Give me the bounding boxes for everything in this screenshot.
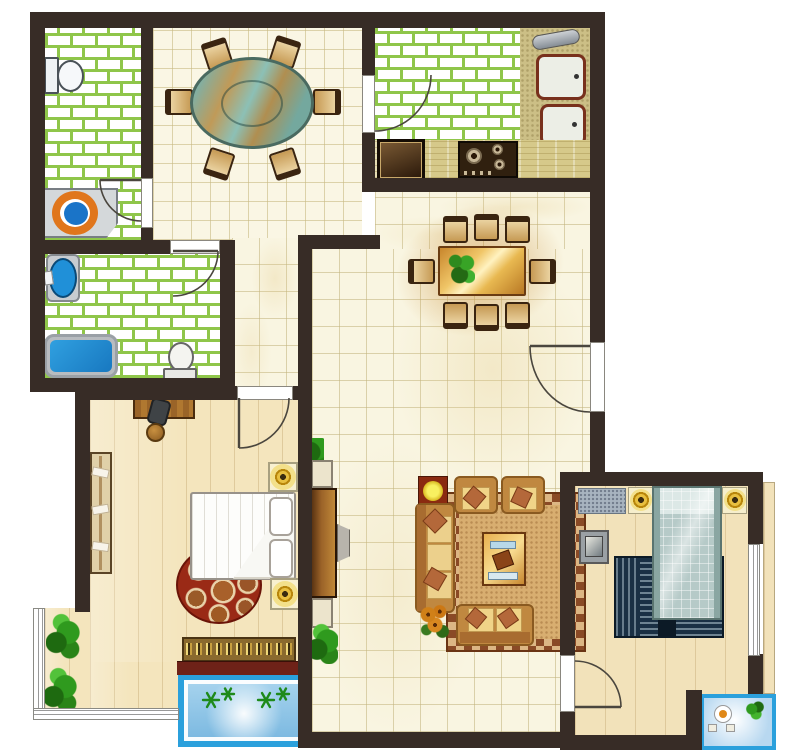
wall-left-upper (30, 12, 45, 392)
dresser[interactable] (578, 488, 626, 514)
dining-chair[interactable] (313, 89, 341, 115)
table-plant-icon (447, 251, 475, 285)
wall-bed2-south (560, 735, 702, 750)
door-leaf-kitchen[interactable] (362, 75, 375, 133)
window-balcony-south (33, 708, 179, 720)
wall-right-upper (590, 12, 605, 342)
stove-knobs (464, 171, 492, 175)
sink-drain-icon (574, 74, 579, 79)
wall-kitchen-west-upper (362, 28, 375, 75)
wall-bed2-step (686, 690, 702, 740)
sunflower-pot (418, 604, 452, 642)
corridor-floor (232, 238, 298, 400)
side-table-lamp[interactable] (423, 481, 443, 501)
striped-rug-panel (616, 558, 640, 636)
balcony-plant (744, 700, 766, 720)
piano[interactable] (310, 488, 337, 598)
coffee-table-magazine (488, 572, 518, 580)
radiator-bench-pattern (186, 643, 292, 655)
hall-chair[interactable] (443, 216, 468, 243)
nightstand-lamp[interactable] (270, 464, 296, 490)
potted-plant (308, 622, 338, 664)
stove-burner-icon (492, 144, 503, 155)
hall-chair[interactable] (443, 302, 468, 329)
wall-bed2-west (560, 472, 575, 655)
wall-hall-south (298, 732, 575, 748)
floor-plan (0, 0, 786, 752)
wall-kitchen-south (362, 178, 605, 192)
window-bedroom2-east (748, 544, 760, 656)
wall-bath2-north-a (30, 240, 170, 254)
door-gap-bedroom-2 (560, 655, 575, 712)
wall-bed2-east-stub (748, 654, 763, 694)
hall-chair[interactable] (408, 259, 435, 284)
loveseat-backrest (460, 632, 530, 643)
flower-box-south (178, 674, 310, 747)
bistro-seat[interactable] (726, 724, 735, 732)
door-gap-bathroom-1 (141, 178, 153, 228)
wall-bedroom-west (75, 392, 90, 612)
balcony-shrub (43, 664, 77, 714)
bedroom-2-east-sill (763, 482, 775, 694)
storage-cabinet[interactable] (311, 460, 333, 488)
bed-pillow (269, 539, 293, 578)
hall-chair[interactable] (474, 304, 499, 331)
wall-bedroom-north (75, 386, 237, 400)
door-leaf-entry[interactable] (590, 342, 605, 412)
wall-bath1-east (141, 28, 153, 178)
double-bed-2[interactable] (652, 486, 722, 620)
stove-burner-icon (494, 159, 505, 170)
washbasin-2-bowl (49, 258, 77, 298)
washbasin-1-bowl (64, 202, 88, 225)
nightstand-lamp[interactable] (630, 489, 652, 511)
piano-bench[interactable] (337, 524, 350, 562)
tv-screen (585, 536, 603, 557)
south-wall-red-strip (177, 661, 302, 675)
hall-chair[interactable] (505, 302, 530, 329)
door-gap-master-bedroom (237, 386, 293, 400)
hall-chair[interactable] (505, 216, 530, 243)
door-gap-bathroom-2 (170, 240, 220, 254)
wall-hall-west (298, 235, 312, 748)
master-bedroom-floor-south (90, 662, 179, 708)
wall-bath2-north-b (220, 240, 235, 254)
bathtub-basin (50, 340, 112, 372)
wall-bath2-east (220, 254, 235, 386)
sink-drain-icon (572, 122, 577, 127)
nightstand-lamp[interactable] (724, 489, 746, 511)
wall-bed2-east (748, 472, 763, 544)
oven-unit[interactable] (377, 139, 425, 181)
bistro-table-center (719, 710, 727, 718)
stool[interactable] (146, 423, 165, 442)
bed-pillow (269, 497, 293, 536)
wall-dining-south (300, 235, 380, 249)
bistro-seat[interactable] (708, 724, 717, 732)
window-balcony-west (33, 608, 45, 720)
wall-top (30, 12, 605, 28)
nightstand-lamp[interactable] (272, 581, 298, 607)
hall-chair[interactable] (529, 259, 556, 284)
oval-table-inner-ring (221, 80, 283, 127)
balcony-shrub (46, 610, 80, 660)
wall-bed2-north (560, 472, 763, 486)
toilet-1-bowl (57, 60, 84, 92)
dining-chair[interactable] (165, 89, 193, 115)
stove-burner-icon (466, 148, 482, 164)
coffee-table-magazine (490, 541, 516, 549)
hall-chair[interactable] (474, 214, 499, 241)
wall-right-stub (590, 412, 605, 474)
